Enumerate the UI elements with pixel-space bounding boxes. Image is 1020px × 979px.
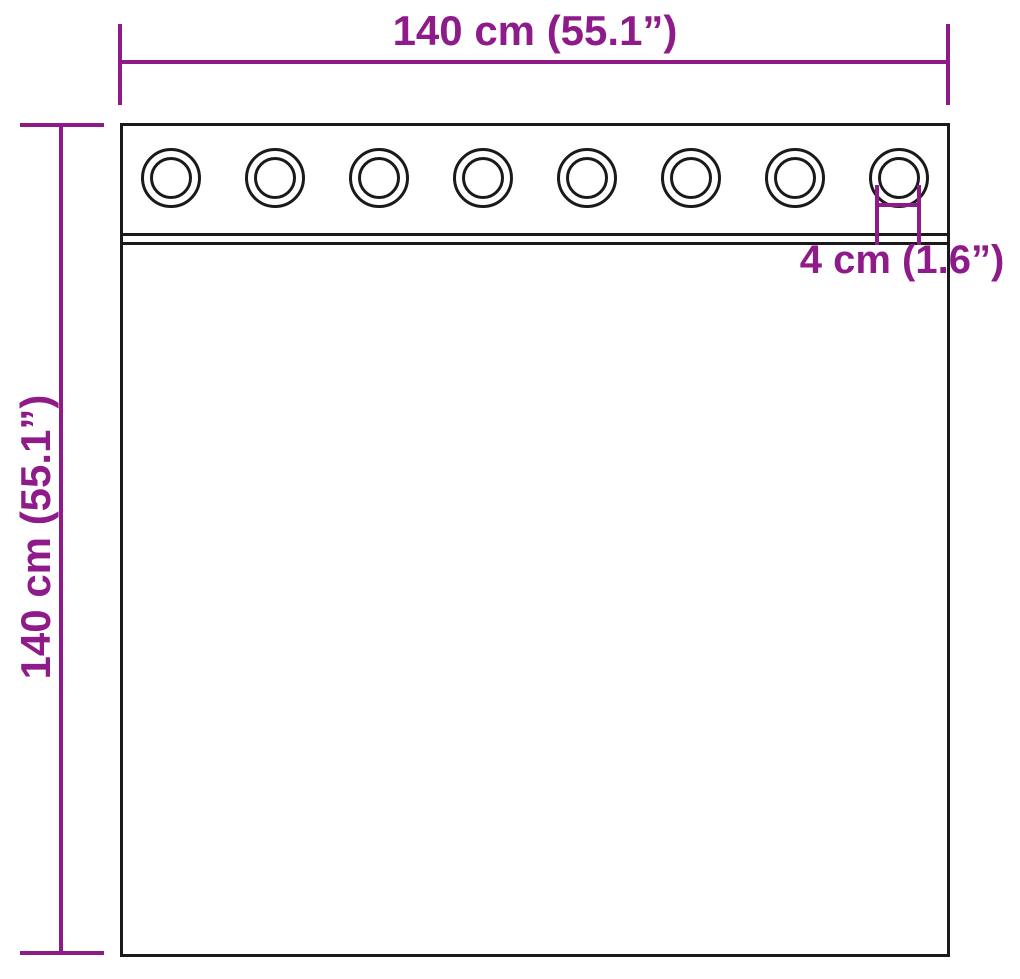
height-dimension-cap-bottom [20,951,104,955]
grommet [453,148,513,208]
grommet [141,148,201,208]
grommet-hole [150,157,192,199]
height-dimension-label: 140 cm (55.1”) [13,237,59,837]
header-seam-line-top [120,233,950,236]
grommet [245,148,305,208]
grommet [349,148,409,208]
dimension-diagram: 140 cm (55.1”) 140 cm (55.1”) 4 cm (1.6”… [0,0,1020,979]
grommet-dimension-line-right [917,185,921,245]
width-dimension-tick-right [946,24,950,105]
grommet [765,148,825,208]
grommet-hole [878,157,920,199]
grommet-hole [358,157,400,199]
grommet-dimension-line-left [875,185,879,245]
grommet-dimension-connector [875,203,921,207]
grommet-hole [566,157,608,199]
grommet-hole [774,157,816,199]
height-dimension-cap-top [20,123,104,127]
grommet-dimension-label: 4 cm (1.6”) [702,237,1020,283]
height-dimension-line [59,125,63,955]
grommet-hole [670,157,712,199]
width-dimension-line [120,60,950,64]
width-dimension-tick-left [118,24,122,105]
grommet [661,148,721,208]
width-dimension-label: 140 cm (55.1”) [120,8,950,54]
grommet-hole [462,157,504,199]
grommet [557,148,617,208]
grommet-hole [254,157,296,199]
